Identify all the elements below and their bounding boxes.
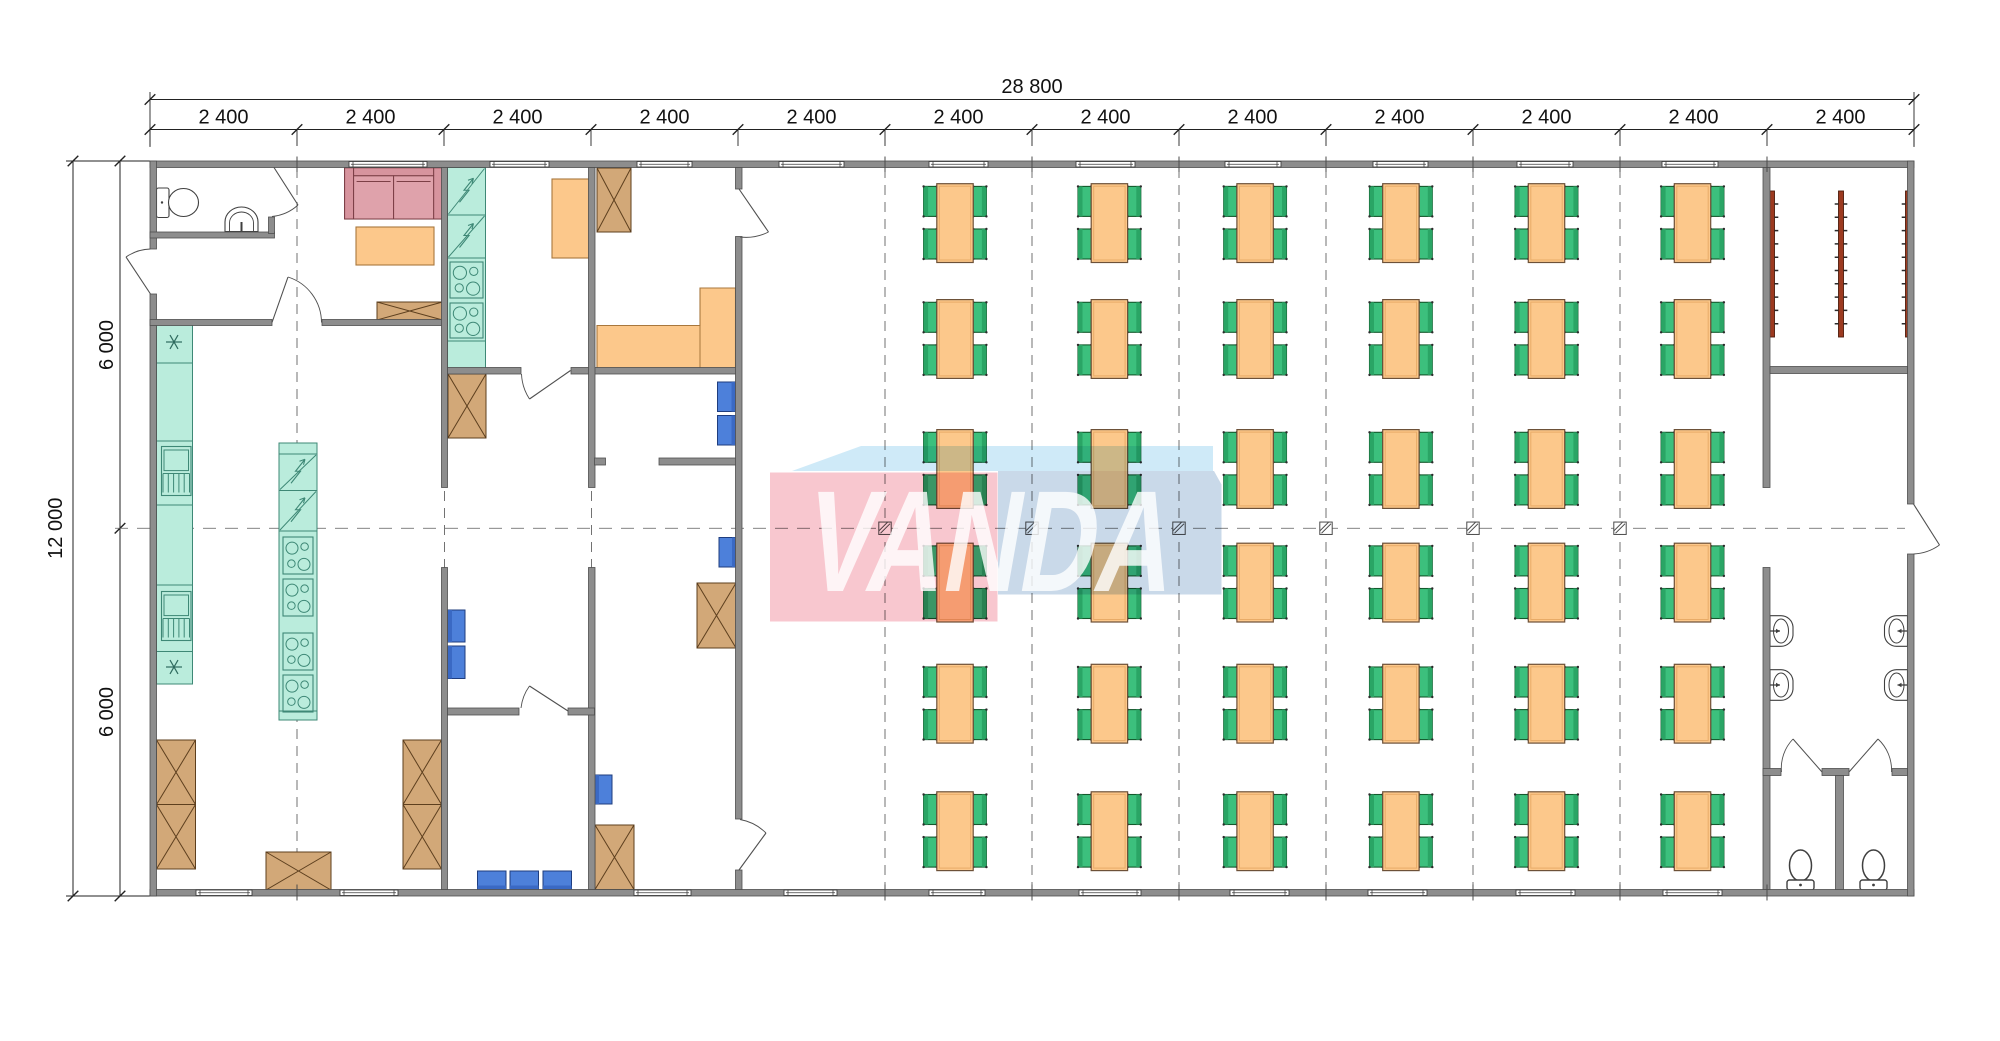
svg-text:28 800: 28 800: [1001, 76, 1062, 98]
svg-text:2 400: 2 400: [1668, 107, 1718, 129]
svg-text:2 400: 2 400: [1374, 107, 1424, 129]
svg-text:2 400: 2 400: [1227, 107, 1277, 129]
svg-text:2 400: 2 400: [345, 107, 395, 129]
svg-text:6 000: 6 000: [96, 320, 118, 370]
svg-text:2 400: 2 400: [1521, 107, 1571, 129]
svg-text:2 400: 2 400: [198, 107, 248, 129]
svg-text:2 400: 2 400: [933, 107, 983, 129]
svg-text:2 400: 2 400: [786, 107, 836, 129]
svg-text:2 400: 2 400: [1815, 107, 1865, 129]
svg-text:VANDA: VANDA: [795, 461, 1190, 622]
svg-text:2 400: 2 400: [1080, 107, 1130, 129]
svg-text:6 000: 6 000: [96, 687, 118, 737]
svg-text:2 400: 2 400: [639, 107, 689, 129]
svg-text:12 000: 12 000: [45, 498, 67, 559]
svg-text:2 400: 2 400: [492, 107, 542, 129]
